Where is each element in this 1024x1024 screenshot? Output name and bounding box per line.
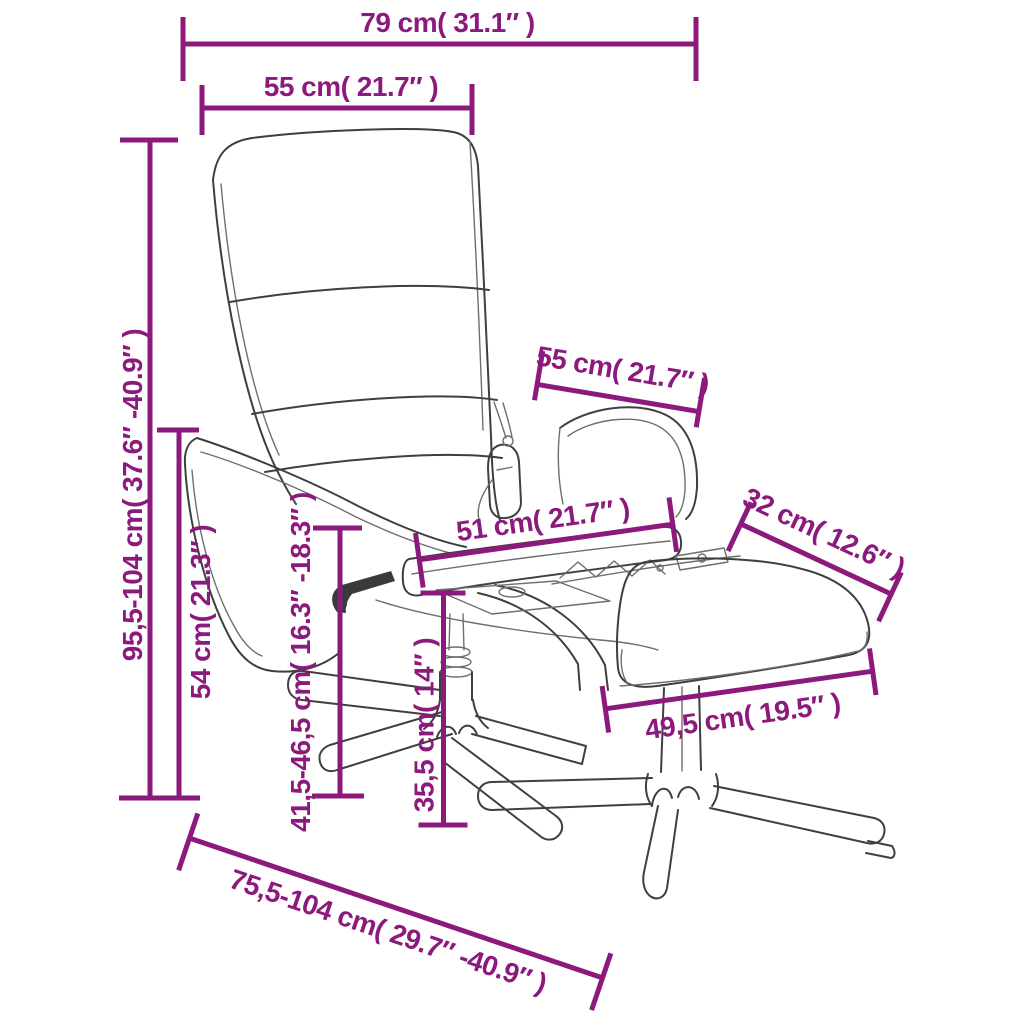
dimension-label: 35,5 cm( 14″ ) — [409, 638, 440, 813]
dimension-label: 75,5-104 cm( 29.7″ -40.9″ ) — [226, 863, 551, 999]
product-dimension-diagram: 79 cm( 31.1″ ) 55 cm( 21.7″ ) 95,5-104 c… — [0, 0, 1024, 1024]
dimension-label: 79 cm( 31.1″ ) — [360, 7, 535, 38]
dimension-tick — [602, 686, 609, 733]
dimension-backrest-width: 55 cm( 21.7″ ) — [202, 71, 472, 135]
dimension-tick — [869, 648, 876, 695]
chair-backrest — [213, 129, 502, 520]
dimension-label: 49,5 cm( 19.5″ ) — [643, 687, 842, 745]
dimension-footstool-width: 49,5 cm( 19.5″ ) — [602, 648, 878, 750]
diagram-canvas: 79 cm( 31.1″ ) 55 cm( 21.7″ ) 95,5-104 c… — [0, 0, 1024, 1024]
dimension-line — [190, 838, 603, 978]
recline-mechanism — [552, 548, 740, 584]
chair-armrest-left — [185, 438, 466, 672]
dimension-label: 55 cm( 21.7″ ) — [264, 71, 439, 102]
dimension-seat-depth: 51 cm( 21.7″ ) — [414, 487, 677, 588]
dimension-tick — [592, 953, 611, 1010]
dimension-total-depth: 75,5-104 cm( 29.7″ -40.9″ ) — [177, 813, 611, 1015]
dimension-label: 95,5-104 cm( 37.6″ -40.9″ ) — [117, 329, 148, 661]
dimension-armrest-height: 54 cm( 21.3″ ) — [148, 430, 216, 798]
dimension-label: 41,5-46,5 cm( 16.3″ -18.3″ ) — [285, 492, 316, 832]
dimension-footstool-height: 35,5 cm( 14″ ) — [409, 593, 468, 825]
chair-base — [288, 581, 610, 840]
dimension-footstool-depth: 32 cm( 12.6″ ) — [721, 481, 910, 621]
dimension-total-width: 79 cm( 31.1″ ) — [183, 7, 696, 81]
folded-footrest — [478, 585, 608, 690]
dimension-armrest-depth: 55 cm( 21.7″ ) — [529, 340, 711, 428]
massage-remote — [478, 402, 521, 520]
dimension-label: 54 cm( 21.3″ ) — [185, 525, 216, 700]
